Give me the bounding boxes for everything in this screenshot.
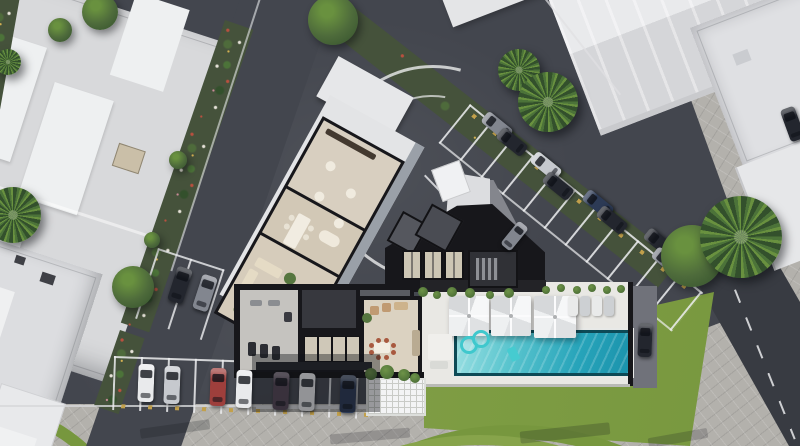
elevator-shaft [423,250,443,280]
planter-shrub [398,369,410,381]
building-east-wall [628,282,633,386]
prop-round [362,313,372,323]
car-carDark [637,323,652,357]
tree [48,18,72,42]
pool-float-ring [472,330,490,348]
planter-shrub [617,285,625,293]
sun-lounger [568,296,578,316]
prop [412,330,420,356]
planter-shrub [418,287,428,297]
planter-shrub [465,288,475,298]
prop [284,312,292,322]
planter-shrub [433,291,441,299]
prop-round [369,343,374,348]
car-carWhite [137,364,154,403]
planter-shrub [542,286,550,294]
planter-shrub [380,365,394,379]
tree [112,266,154,308]
prop-round [391,343,396,348]
sun-lounger [592,296,602,316]
prop [382,303,391,312]
prop [268,300,280,306]
locker-room [302,290,356,328]
planter-shrub [410,373,420,383]
planter-shrub [573,286,581,294]
palm-tree [700,196,782,278]
stairwell [468,250,518,288]
elevator-shaft [402,250,422,280]
planter-shrub [486,291,494,299]
planter-shrub [447,287,457,297]
planter-shrub [504,288,514,298]
prop [394,302,408,310]
prop-round [376,338,381,343]
planter-shrub [588,284,596,292]
tree [169,151,187,169]
planter-shrub [557,284,565,292]
car-carWhite [235,370,252,409]
elevator-shaft [444,250,464,280]
scene [0,0,800,446]
planter-shrub [603,286,611,294]
sun-lounger [580,296,590,316]
prop [374,342,390,353]
prop [430,361,448,369]
tree [144,232,160,248]
prop-round [384,338,389,343]
car-carSilver [163,366,180,405]
palm-tree [518,72,578,132]
prop-round [384,355,389,360]
prop [370,306,379,315]
deck-south-edge [420,384,630,387]
pool-umbrella [491,296,531,336]
prop-round [391,350,396,355]
prop [250,300,262,306]
building-shadow [252,354,380,412]
stair-steps [476,258,498,280]
car-carRed [209,368,226,407]
sun-lounger [604,296,614,316]
prop [428,334,452,360]
